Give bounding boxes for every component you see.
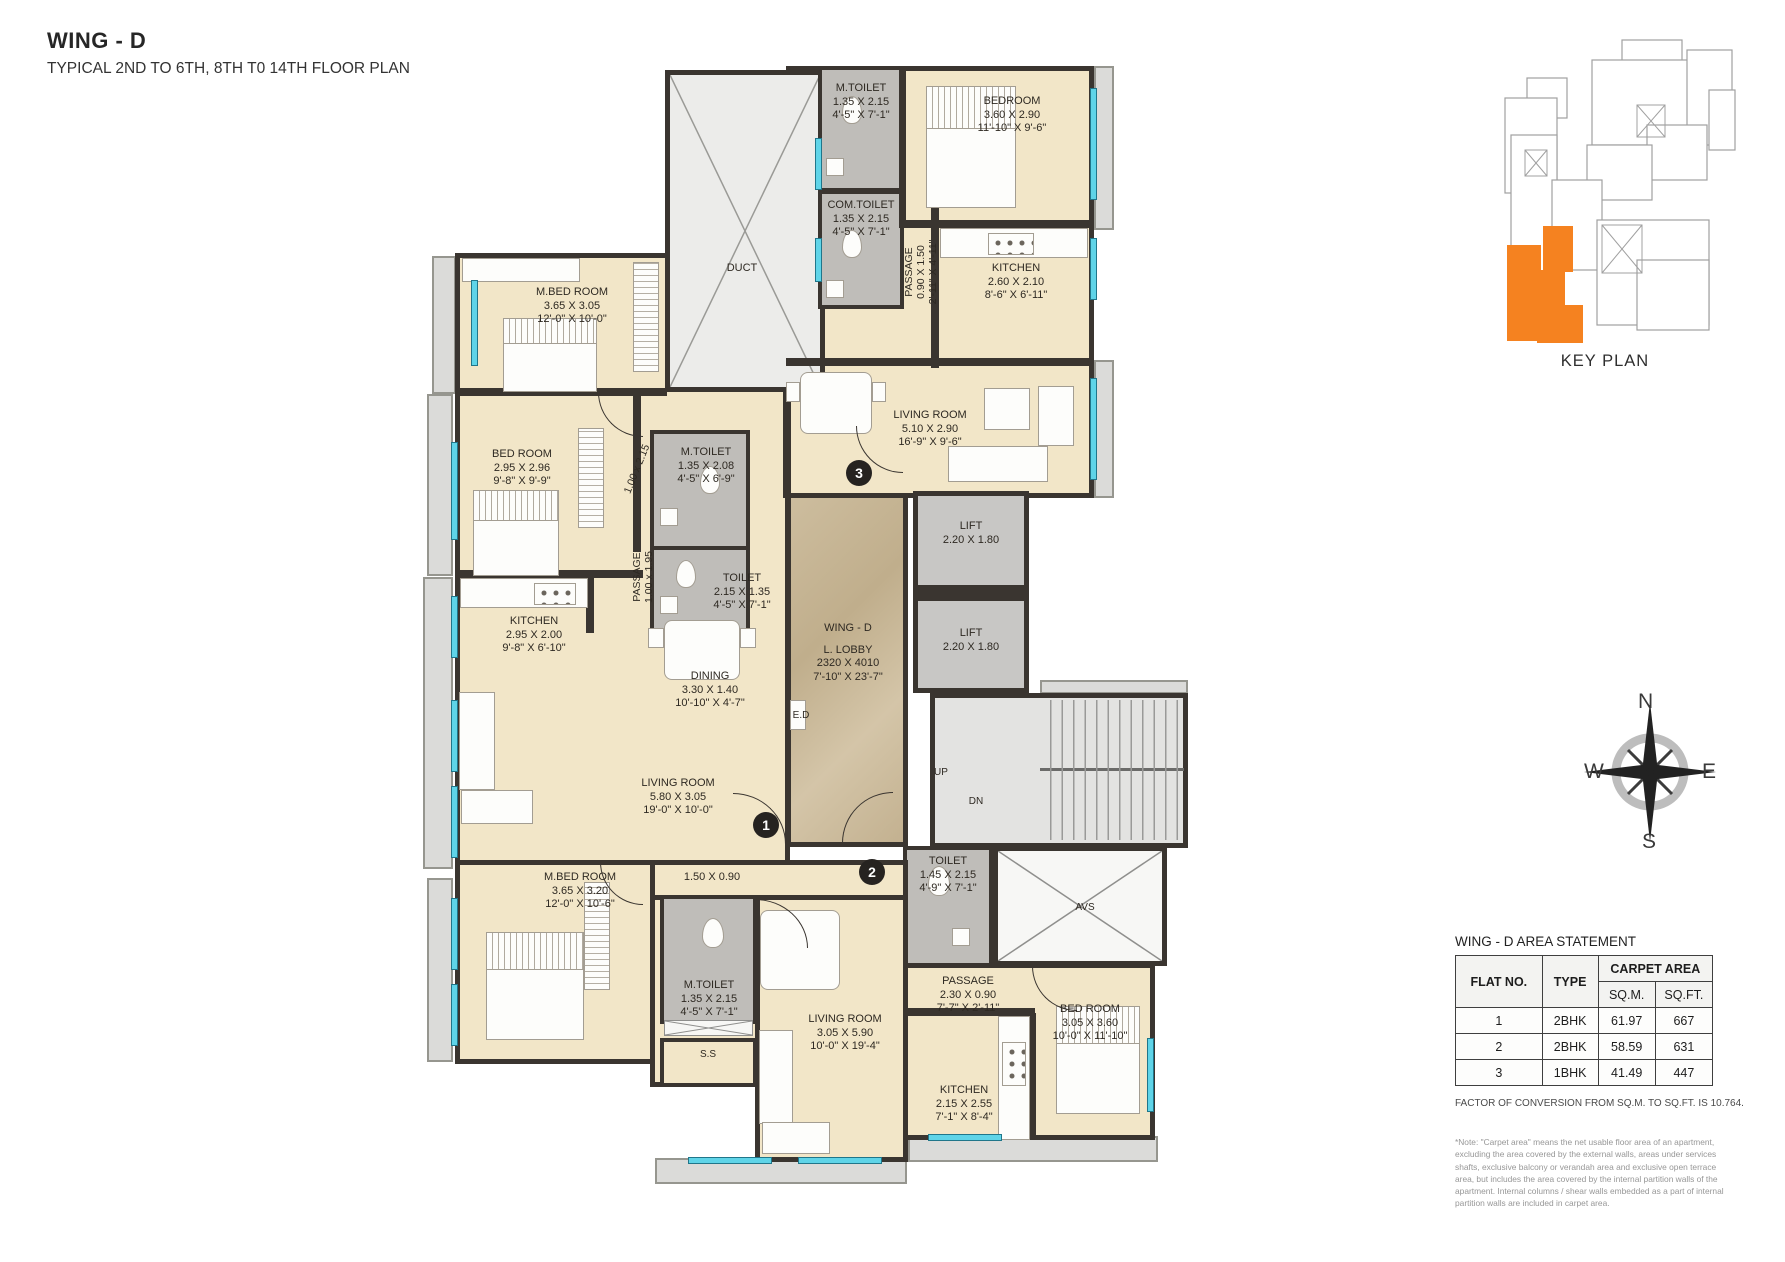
key-plan-label: KEY PLAN [1530,352,1680,371]
cell-type: 2BHK [1542,1008,1598,1034]
room-label-flat2-mbedroom: M.BED ROOM3.65 X 3.2012'-0" X 10'-6" [515,871,645,912]
conversion-note: FACTOR OF CONVERSION FROM SQ.M. TO SQ.FT… [1455,1098,1775,1109]
label-up: UP [921,767,961,778]
cell-flat: 1 [1456,1008,1543,1034]
wall [783,390,791,498]
compass-s-label: S [1642,830,1656,854]
balcony-ledge [427,878,453,1062]
shelf [462,258,580,282]
cell-sqm: 58.59 [1598,1034,1655,1060]
window [471,280,478,366]
window [451,786,458,858]
room-label-flat2-bedroom: BED ROOM3.05 X 3.6010'-0" X 11'-10" [1025,1003,1155,1044]
page-title: WING - D [47,28,146,54]
sofa [461,790,533,824]
window [1147,1038,1154,1112]
window [451,700,458,772]
toilet-bowl [702,918,724,948]
flat-3-badge: 3 [846,460,872,486]
cell-flat: 3 [1456,1060,1543,1086]
window [1090,378,1097,480]
cell-flat: 2 [1456,1034,1543,1060]
dining-table [800,372,872,434]
cell-sqm: 61.97 [1598,1008,1655,1034]
room-label-flat1-toilet: TOILET2.15 X 1.354'-5" X 7'-1" [677,572,807,613]
shaft-cross [664,1020,753,1036]
cell-type: 2BHK [1542,1034,1598,1060]
room-label-flat1-living: LIVING ROOM5.80 X 3.0519'-0" X 10'-0" [613,777,743,818]
col-header-sqft: SQ.FT. [1655,982,1712,1008]
room-label-flat2-passage: PASSAGE2.30 X 0.907'-7" X 2'-11" [903,975,1033,1016]
area-statement: WING - D AREA STATEMENT FLAT NO. TYPE CA… [1455,934,1717,1086]
room-label-flat1-kitchen: KITCHEN2.95 X 2.009'-8" X 6'-10" [469,615,599,656]
washbasin [826,158,844,176]
room-label-flat3-living: LIVING ROOM5.10 X 2.9016'-9" X 9'-6" [865,409,995,450]
window [928,1134,1002,1141]
cell-type: 1BHK [1542,1060,1598,1086]
carpet-area-note: *Note: "Carpet area" means the net usabl… [1455,1136,1725,1210]
cell-sqft: 667 [1655,1008,1712,1034]
room-label-flat3-mtoilet: M.TOILET1.35 X 2.154'-5" X 7'-1" [796,82,926,123]
hob [1002,1042,1026,1086]
balcony-ledge [432,256,456,394]
room-label-lift-1: LIFT2.20 X 1.80 [906,520,1036,547]
room-label-flat3-bedroom: BEDROOM3.60 X 2.9011'-10" X 9'-6" [947,95,1077,136]
room-label-lobby: WING - DL. LOBBY2320 X 40107'-10" X 23'-… [783,622,913,684]
window [1090,238,1097,300]
armchair [1038,386,1074,446]
col-header-flat-no: FLAT NO. [1456,956,1543,1008]
washbasin [952,928,970,946]
sofa [762,1122,830,1154]
washbasin [660,596,678,614]
flat-2-badge: 2 [859,859,885,885]
room-label-flat1-dining: DINING3.30 X 1.4010'-10" X 4'-7" [645,670,775,711]
window [798,1157,882,1164]
area-statement-title: WING - D AREA STATEMENT [1455,934,1717,949]
room-label-lift-2: LIFT2.20 X 1.80 [906,627,1036,654]
balcony-ledge [1040,680,1188,694]
label-avs: AVS [1065,902,1105,913]
chair [786,382,800,402]
bed [503,318,597,392]
col-header-sqm: SQ.M. [1598,982,1655,1008]
cell-sqft: 447 [1655,1060,1712,1086]
bed [473,490,559,576]
page-subtitle: TYPICAL 2ND TO 6TH, 8TH T0 14TH FLOOR PL… [47,60,410,78]
sofa [459,692,495,790]
table-row: 3 1BHK 41.49 447 [1456,1060,1713,1086]
cell-sqm: 41.49 [1598,1060,1655,1086]
room-label-flat2-toilet: TOILET1.45 X 2.154'-9" X 7'-1" [883,855,1013,896]
window [688,1157,772,1164]
floor-plan-sheet: WING - D TYPICAL 2ND TO 6TH, 8TH T0 14TH… [0,0,1785,1262]
room-label-flat2-kitchen: KITCHEN2.15 X 2.557'-1" X 8'-4" [899,1084,1029,1125]
room-label-flat2-living: LIVING ROOM3.05 X 5.9010'-0" X 19'-4" [780,1013,910,1054]
wall [913,585,1029,598]
chair [740,628,756,648]
window [451,898,458,970]
table-row: 1 2BHK 61.97 667 [1456,1008,1713,1034]
balcony-ledge [1094,66,1114,230]
balcony-ledge [423,577,453,869]
window [1090,88,1097,200]
compass-w-label: W [1584,760,1604,784]
hob [988,233,1034,255]
label-ss: S.S [688,1049,728,1060]
window [451,984,458,1046]
flat-1-badge: 1 [753,812,779,838]
compass-n-label: N [1638,690,1653,714]
wall [786,358,1094,366]
key-plan-map [1497,30,1737,352]
label-ed: E.D [781,710,821,721]
balcony-ledge [1094,360,1114,498]
room-label-flat1-passage: PASSAGE1.00 x 1.95 [631,507,655,647]
col-header-carpet-area: CARPET AREA [1598,956,1712,982]
chair [872,382,886,402]
room-label-flat1-bedroom: BED ROOM2.95 X 2.969'-8" X 9'-9" [457,448,587,489]
washbasin [826,280,844,298]
room-label-duct: DUCT [677,262,807,276]
cell-sqft: 631 [1655,1034,1712,1060]
table-row: 2 2BHK 58.59 631 [1456,1034,1713,1060]
window [815,138,822,190]
dim-label-corridor: 1.50 X 0.90 [647,871,777,885]
room-label-flat1-mbedroom: M.BED ROOM3.65 X 3.0512'-0" X 10'-0" [507,286,637,327]
balcony-ledge [427,394,453,576]
washbasin [660,508,678,526]
bed [486,932,584,1040]
stair-treads [1040,700,1184,840]
hob [534,583,576,605]
area-statement-table: FLAT NO. TYPE CARPET AREA SQ.M. SQ.FT. 1… [1455,955,1713,1086]
room-label-flat2-mtoilet: M.TOILET1.35 X 2.154'-5" X 7'-1" [644,979,774,1020]
label-dn: DN [956,796,996,807]
compass-e-label: E [1702,760,1716,784]
room-label-flat3-passage: PASSAGE0.90 X 1.502'-11" X 4'-11" [903,202,939,342]
window [451,596,458,658]
room-label-flat3-kitchen: KITCHEN2.60 X 2.108'-6" X 6'-11" [951,262,1081,303]
window [815,238,822,282]
sofa [948,446,1048,482]
room-label-flat1-mtoilet: M.TOILET1.35 X 2.084'-5" X 6'-9" [641,446,771,487]
ss-area [660,1038,757,1087]
col-header-type: TYPE [1542,956,1598,1008]
